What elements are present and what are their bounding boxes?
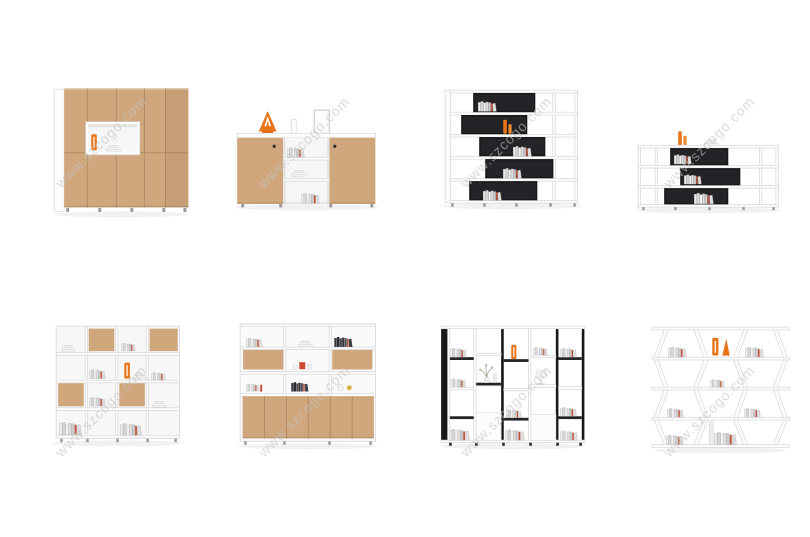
orange-vase [91, 134, 97, 150]
product-photo-checkerboard-bookcase[interactable]: www.szcogo.com [0, 269, 203, 537]
base-cabinet [531, 414, 556, 440]
door-handle-left [272, 145, 275, 148]
top-decor [259, 110, 329, 133]
top-decor [678, 131, 718, 145]
product-grid: www.szcogo.com [0, 0, 810, 537]
product-photo-bookcase-wood-base-doors[interactable]: www.szcogo.com [203, 269, 406, 537]
checkerboard-bookcase-illustration [0, 269, 203, 537]
bookcase-wood-base-doors-illustration [203, 269, 406, 537]
orange-bottles [678, 131, 686, 145]
door-handle-right [333, 145, 336, 148]
white-vase [291, 119, 296, 133]
wood-door-left [237, 138, 283, 204]
divider-frame [441, 326, 584, 443]
photo-frame [314, 110, 329, 133]
dish-stack [704, 139, 718, 145]
staggered-shelf-5-tier-illustration [405, 0, 608, 269]
product-photo-zigzag-shelf[interactable]: www.szcogo.com [608, 269, 810, 537]
wood-door-right [329, 138, 375, 204]
orange-vase [124, 362, 130, 378]
orange-bookends [712, 337, 730, 355]
column-room-divider-illustration [405, 269, 608, 537]
black-shelf-boxes [461, 93, 553, 200]
plant [479, 364, 493, 383]
product-photo-column-room-divider[interactable]: www.szcogo.com [405, 269, 608, 537]
sideboard-body [237, 133, 375, 204]
zigzag-shelf-illustration [608, 269, 810, 537]
product-photo-staggered-shelf-5-tier[interactable]: www.szcogo.com [405, 0, 608, 269]
display-niche [86, 122, 140, 155]
zigzag-shelf-slabs [652, 327, 789, 447]
product-photo-wood-sideboard[interactable]: www.szcogo.com [203, 0, 406, 269]
base-cabinet [476, 412, 501, 440]
product-photo-staggered-shelf-3-tier[interactable]: www.szcogo.com [608, 0, 810, 269]
product-photo-wood-cabinet-tall[interactable]: www.szcogo.com [0, 0, 203, 269]
wood-base-doors [242, 396, 373, 438]
orange-ornament [511, 344, 516, 358]
table-lamp [535, 369, 547, 384]
staggered-shelf-3-tier-illustration [608, 0, 810, 269]
cabinet-feet [66, 208, 186, 212]
wood-sideboard-illustration [203, 0, 406, 269]
product-catalog-page: www.szcogo.com [0, 0, 810, 537]
ornament-triangle [259, 112, 276, 133]
tower-shelves [450, 353, 582, 440]
wood-cabinet-tall-illustration [0, 0, 203, 269]
shelf-items [666, 337, 763, 444]
